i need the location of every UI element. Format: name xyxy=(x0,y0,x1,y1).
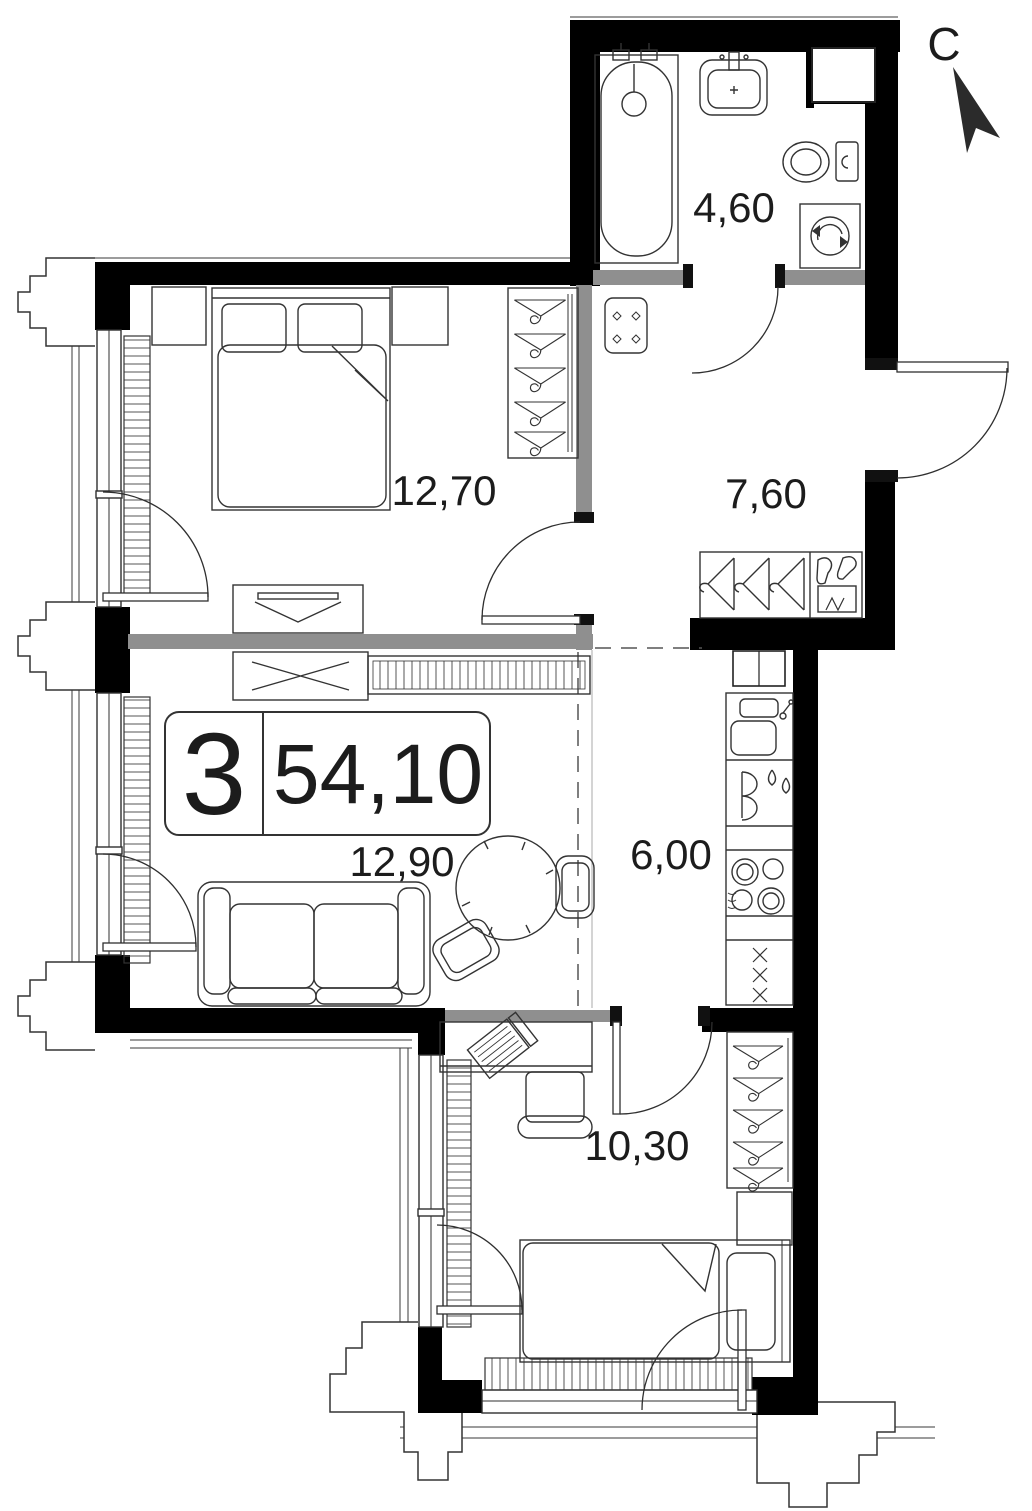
radiator-icon xyxy=(447,1060,471,1327)
area-living: 12,90 xyxy=(349,838,454,885)
hallway-closet-icon xyxy=(700,552,862,618)
toilet-icon xyxy=(783,142,858,182)
hallway-items xyxy=(605,298,862,618)
washbasin-icon xyxy=(700,52,767,115)
round-table-icon xyxy=(456,836,560,940)
compass-letter: С xyxy=(927,18,960,70)
vent-shaft-bathroom xyxy=(812,48,875,102)
area-bathroom: 4,60 xyxy=(693,184,775,231)
floor-plan-drawing: 3 54,10 4,60 12,70 7,60 12,90 6,00 10,30… xyxy=(0,0,1032,1511)
radiator-icon xyxy=(124,336,150,600)
zone-boundary-dashed xyxy=(578,648,702,1008)
pilaster-bottom-right xyxy=(757,1402,895,1507)
double-bed-icon xyxy=(212,288,390,510)
sofa-icon xyxy=(198,882,430,1006)
shoes-icon xyxy=(838,557,857,579)
wardrobe-hangers-icon xyxy=(508,288,578,458)
kitchen-units xyxy=(726,693,793,1005)
kitchen-sink-icon xyxy=(731,699,793,755)
stove-icon xyxy=(728,859,784,914)
shoes-icon xyxy=(817,558,832,584)
washing-machine-icon xyxy=(800,204,860,268)
dresser-icon xyxy=(233,652,368,700)
area-bedroom2: 10,30 xyxy=(584,1122,689,1169)
doors xyxy=(103,287,1008,1410)
floor-hatch-icon xyxy=(605,298,647,353)
apartment-label: 3 54,10 xyxy=(165,709,490,839)
floor-plan-page: 3 54,10 4,60 12,70 7,60 12,90 6,00 10,30… xyxy=(0,0,1032,1511)
area-kitchen: 6,00 xyxy=(630,831,712,878)
cabinet-icon xyxy=(737,1192,792,1245)
chair-icon xyxy=(429,915,504,985)
nightstand-icon xyxy=(152,287,448,345)
vent-shaft-kitchen xyxy=(733,651,785,686)
pilaster-low-left xyxy=(18,962,95,1050)
single-bed-icon xyxy=(520,1240,790,1362)
kitchen-cabinet-icon xyxy=(753,948,767,1002)
chair-icon xyxy=(556,856,594,918)
fridge-icon xyxy=(742,770,790,820)
tv-console-icon xyxy=(368,656,590,694)
desk-chair-icon xyxy=(518,1072,592,1138)
dresser-icon xyxy=(233,585,363,633)
wardrobe-hangers-icon xyxy=(727,1032,793,1191)
compass: С xyxy=(927,18,1000,153)
area-hallway: 7,60 xyxy=(725,470,807,517)
pilaster-top-left xyxy=(18,258,95,346)
radiator-icon xyxy=(124,697,150,963)
north-arrow-icon xyxy=(953,67,1000,153)
apartment-total-area: 54,10 xyxy=(273,727,483,821)
pilaster-mid-left xyxy=(18,602,95,690)
area-bedroom: 12,70 xyxy=(391,467,496,514)
apartment-number: 3 xyxy=(182,709,247,839)
bedroom-furniture xyxy=(152,287,578,633)
radiator-icon xyxy=(485,1358,752,1390)
bathtub-icon xyxy=(595,43,678,263)
